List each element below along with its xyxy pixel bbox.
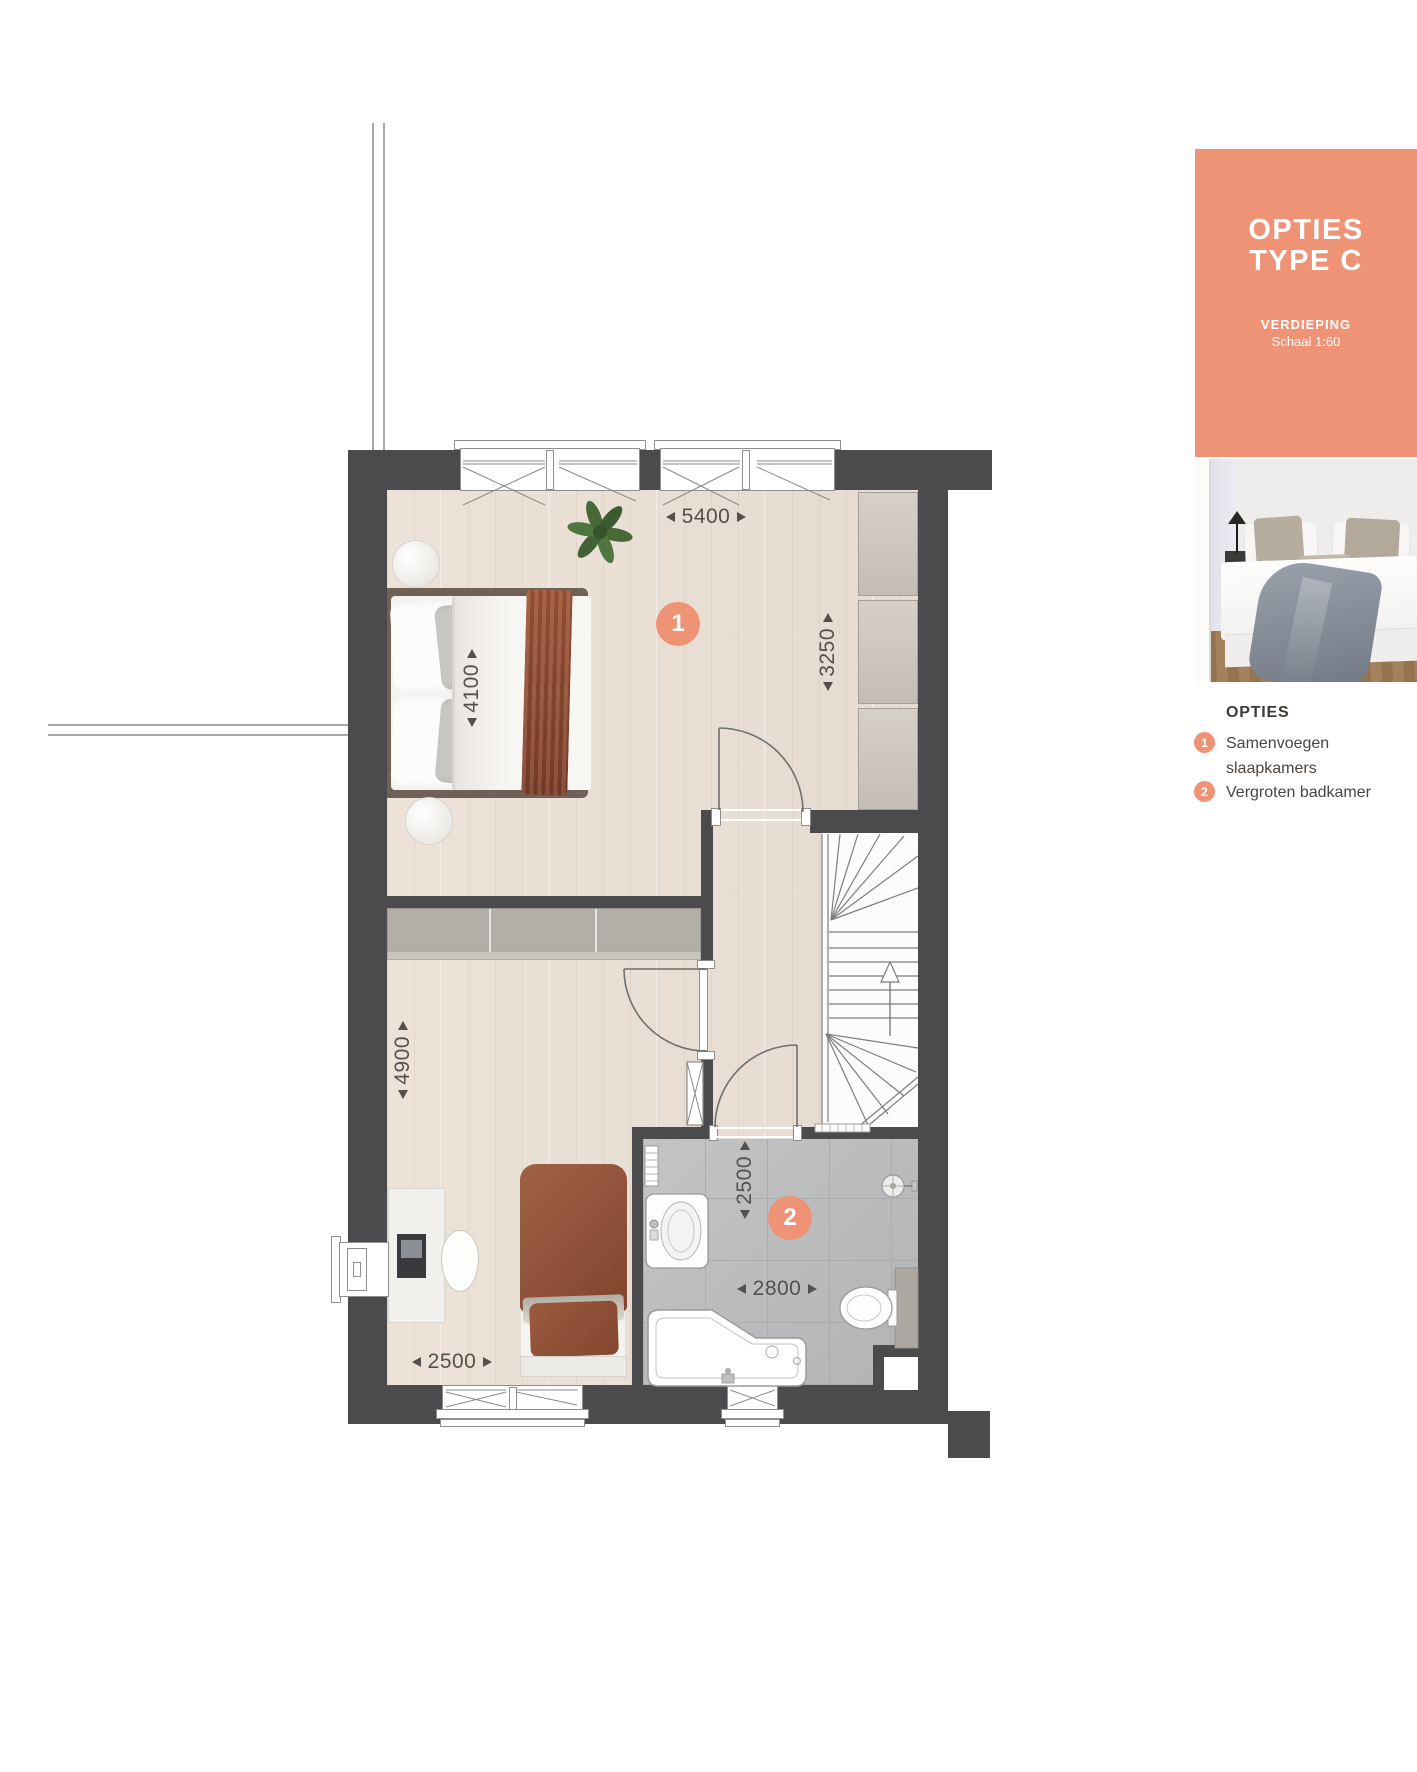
dim-arrow-down-icon bbox=[467, 718, 477, 727]
dimension-bathroom-width: 2800 bbox=[717, 1276, 837, 1302]
plan-marker-1: 1 bbox=[656, 602, 700, 646]
door-post bbox=[793, 1125, 802, 1141]
shaft-niche bbox=[884, 1357, 918, 1390]
bed-throw bbox=[521, 589, 572, 795]
dimension-bathroom-depth: 2500 bbox=[730, 1120, 760, 1240]
bedroom2-door-leaf bbox=[699, 969, 708, 1051]
legend-marker-1-number: 1 bbox=[1201, 736, 1208, 750]
dim-arrow-down-icon bbox=[398, 1090, 408, 1099]
window-sill bbox=[725, 1419, 780, 1427]
floorplan-page: 5400 3250 4100 4900 2500 2500 2800 1 2 bbox=[0, 0, 1417, 1772]
window-sill bbox=[721, 1409, 784, 1419]
wall-east bbox=[918, 450, 948, 1424]
window-post bbox=[546, 450, 554, 490]
dimension-bedroom1-width: 5400 bbox=[646, 504, 766, 530]
dim-arrow-left-icon bbox=[412, 1357, 421, 1367]
photo-lamp-shade bbox=[1228, 511, 1246, 524]
window-sill bbox=[440, 1419, 585, 1427]
photo-door-frame bbox=[1195, 459, 1211, 682]
wall-bathroom-north-right bbox=[793, 1127, 918, 1139]
photo-taupe-pillow bbox=[1253, 515, 1304, 564]
dim-arrow-up-icon bbox=[740, 1141, 750, 1150]
dim-arrow-down-icon bbox=[823, 682, 833, 691]
legend-header: OPTIES bbox=[1226, 704, 1289, 722]
panel-title: OPTIES TYPE C bbox=[1195, 215, 1417, 277]
dimension-closet-depth: 3250 bbox=[813, 592, 843, 712]
panel-subtitle: VERDIEPING bbox=[1195, 317, 1417, 332]
closet-shelf bbox=[858, 492, 918, 596]
dim-arrow-up-icon bbox=[467, 649, 477, 658]
dim-arrow-right-icon bbox=[483, 1357, 492, 1367]
panel-scale: Schaal 1:60 bbox=[1195, 334, 1417, 349]
dimension-bedroom2-width: 2500 bbox=[392, 1349, 512, 1375]
dim-arrow-up-icon bbox=[398, 1021, 408, 1030]
options-panel: OPTIES TYPE C VERDIEPING Schaal 1:60 bbox=[1195, 149, 1417, 457]
wall-closet-south bbox=[810, 810, 918, 833]
dim-arrow-down-icon bbox=[740, 1210, 750, 1219]
plan-marker-2-number: 2 bbox=[783, 1204, 796, 1232]
closet-shelf bbox=[858, 600, 918, 704]
bedroom-photo bbox=[1195, 459, 1417, 682]
dim-arrow-right-icon bbox=[808, 1284, 817, 1294]
door-post bbox=[709, 1125, 718, 1141]
dim-arrow-left-icon bbox=[666, 512, 675, 522]
legend-marker-2-number: 2 bbox=[1201, 785, 1208, 799]
wardrobe-divider bbox=[489, 909, 491, 952]
window-west-handle bbox=[353, 1262, 361, 1277]
photo-lamp-stem bbox=[1236, 519, 1238, 553]
stairwell-floor bbox=[822, 833, 918, 1127]
wall-hall-west-upper bbox=[701, 810, 713, 969]
legend-item-1-label: Samenvoegen slaapkamers bbox=[1226, 731, 1401, 781]
party-wall-lines bbox=[48, 123, 384, 735]
door-post bbox=[801, 808, 811, 826]
laptop-screen bbox=[401, 1240, 422, 1258]
dim-arrow-left-icon bbox=[737, 1284, 746, 1294]
single-bed-pillow bbox=[529, 1300, 619, 1357]
dimension-bed-length: 4100 bbox=[457, 628, 487, 748]
door-post bbox=[711, 808, 721, 826]
side-table bbox=[405, 797, 453, 845]
wall-stub-southeast bbox=[948, 1411, 990, 1458]
wall-bathroom-west bbox=[632, 1139, 643, 1385]
legend-item-2-label: Vergroten badkamer bbox=[1226, 780, 1401, 805]
panel-title-line1: OPTIES bbox=[1195, 215, 1417, 246]
wall-bedroom-divider bbox=[387, 896, 703, 908]
window-post bbox=[509, 1387, 517, 1411]
wardrobe-divider bbox=[595, 909, 597, 952]
wall-bathroom-north-left bbox=[632, 1127, 717, 1139]
legend-marker-2: 2 bbox=[1194, 781, 1215, 802]
plan-marker-1-number: 1 bbox=[671, 610, 684, 638]
door-post bbox=[697, 960, 715, 969]
bedroom2-wardrobe bbox=[387, 908, 701, 953]
wall-west-upper bbox=[348, 450, 387, 1242]
dimension-bedroom2-length: 4900 bbox=[388, 1000, 418, 1120]
panel-title-line2: TYPE C bbox=[1195, 246, 1417, 277]
window-post bbox=[742, 450, 750, 490]
bedroom2-wardrobe-top bbox=[387, 951, 701, 960]
single-bed-duvet bbox=[520, 1164, 627, 1312]
legend-marker-1: 1 bbox=[1194, 732, 1215, 753]
closet-shelf bbox=[858, 708, 918, 810]
window-sill bbox=[436, 1409, 589, 1419]
dim-arrow-right-icon bbox=[737, 512, 746, 522]
single-bed-base bbox=[520, 1356, 627, 1377]
window-bathroom bbox=[727, 1385, 778, 1411]
plan-marker-2: 2 bbox=[768, 1196, 812, 1240]
side-table bbox=[392, 540, 440, 588]
wall-stub-northeast bbox=[948, 450, 992, 490]
dim-arrow-up-icon bbox=[823, 613, 833, 622]
door-post bbox=[697, 1051, 715, 1060]
